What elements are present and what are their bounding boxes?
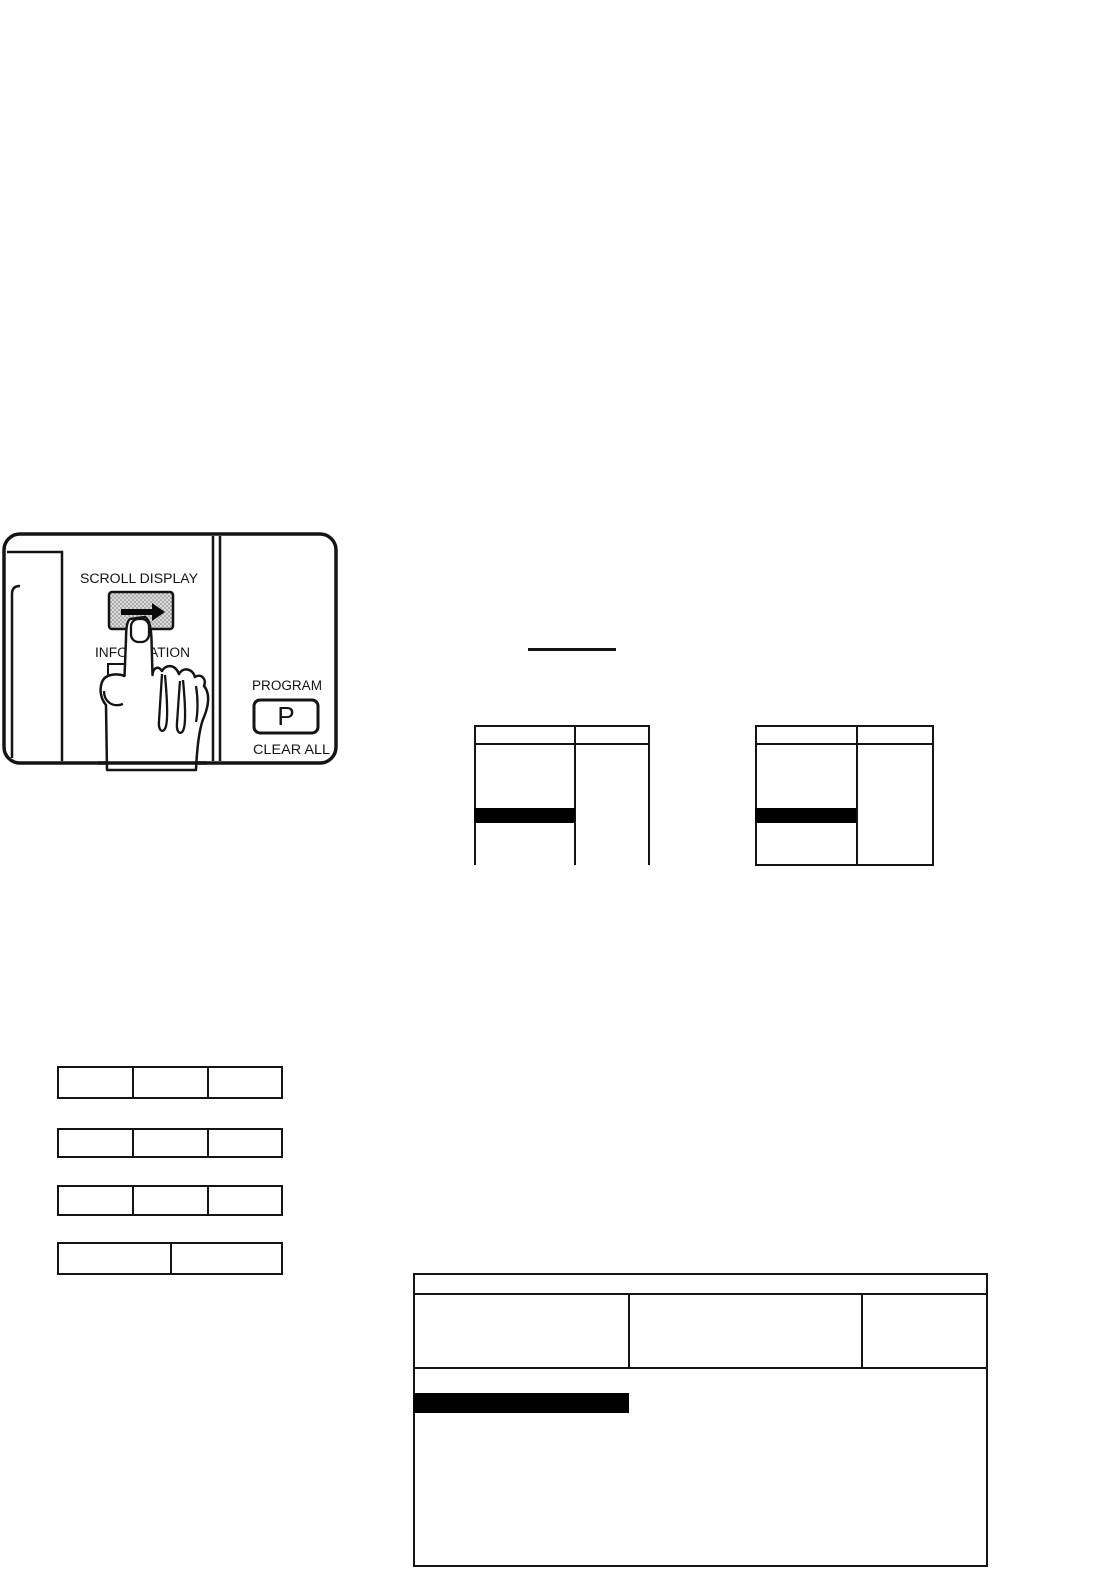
table-column-divider (207, 1068, 209, 1097)
option-row-table (57, 1185, 283, 1216)
table-column-divider (207, 1130, 209, 1156)
program-key-letter: P (277, 701, 294, 731)
control-panel-figure: SCROLL DISPLAY INFORMATION PROGRAM P CLE… (0, 527, 350, 777)
table-header-line (474, 743, 650, 745)
display-table-left (474, 725, 650, 865)
program-label: PROGRAM (252, 678, 322, 693)
option-row-table (57, 1128, 283, 1158)
bottom-display-table (413, 1273, 988, 1567)
option-row-table (57, 1242, 283, 1275)
option-row-table (57, 1066, 283, 1099)
display-table-right (755, 725, 934, 866)
fingernail (131, 619, 149, 642)
highlight-bar (474, 808, 575, 823)
table-column-divider (574, 725, 576, 865)
table-column-divider (628, 1295, 630, 1367)
table-column-divider (856, 725, 858, 864)
table-column-divider (132, 1068, 134, 1097)
clear-all-label: CLEAR ALL (253, 741, 330, 757)
table-column-divider (170, 1244, 172, 1273)
table-header-line (755, 743, 934, 745)
table-column-divider (861, 1295, 863, 1367)
blank-underline-rule (528, 648, 616, 651)
table-header-band-line (413, 1293, 988, 1295)
table-column-divider (132, 1187, 134, 1214)
highlight-bar (413, 1393, 629, 1413)
table-row-line (413, 1367, 988, 1369)
table-column-divider (207, 1187, 209, 1214)
manual-page: SCROLL DISPLAY INFORMATION PROGRAM P CLE… (0, 0, 1094, 1569)
highlight-bar (755, 808, 856, 823)
table-column-divider (132, 1130, 134, 1156)
scroll-display-label: SCROLL DISPLAY (80, 571, 198, 586)
